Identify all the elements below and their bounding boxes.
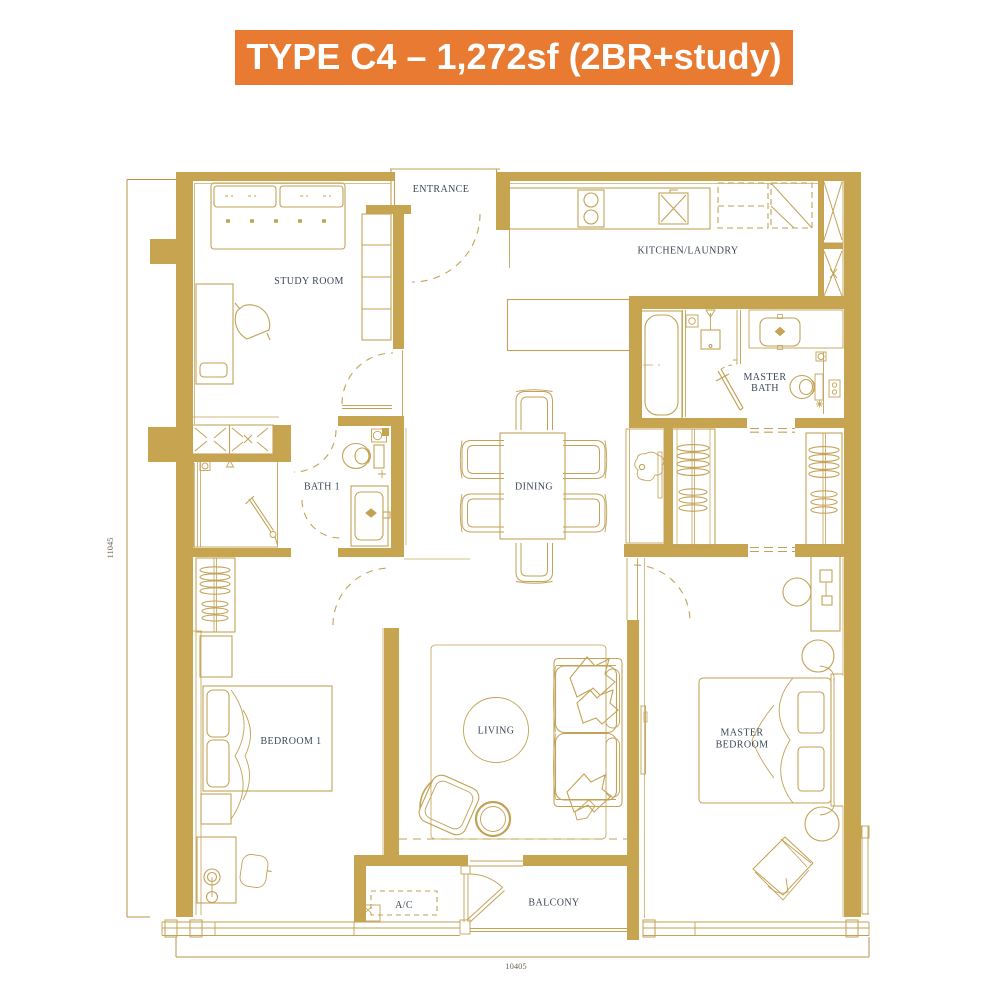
svg-text:KITCHEN/LAUNDRY: KITCHEN/LAUNDRY <box>638 246 739 257</box>
svg-text:11045: 11045 <box>105 538 115 559</box>
svg-text:10405: 10405 <box>505 961 526 971</box>
svg-text:A/C: A/C <box>395 900 413 911</box>
svg-text:BEDROOM 1: BEDROOM 1 <box>260 736 321 747</box>
svg-text:DINING: DINING <box>515 482 553 493</box>
svg-text:BATH 1: BATH 1 <box>304 482 340 493</box>
svg-text:LIVING: LIVING <box>478 726 515 737</box>
svg-text:MASTER: MASTER <box>744 372 787 383</box>
svg-text:BEDROOM: BEDROOM <box>716 740 769 751</box>
svg-text:MASTER: MASTER <box>721 728 764 739</box>
svg-text:STUDY ROOM: STUDY ROOM <box>274 276 343 287</box>
svg-text:ENTRANCE: ENTRANCE <box>413 184 470 195</box>
svg-text:BALCONY: BALCONY <box>528 898 579 909</box>
svg-text:TYPE C4 – 1,272sf (2BR+study): TYPE C4 – 1,272sf (2BR+study) <box>246 36 781 77</box>
svg-text:BATH: BATH <box>751 383 779 394</box>
